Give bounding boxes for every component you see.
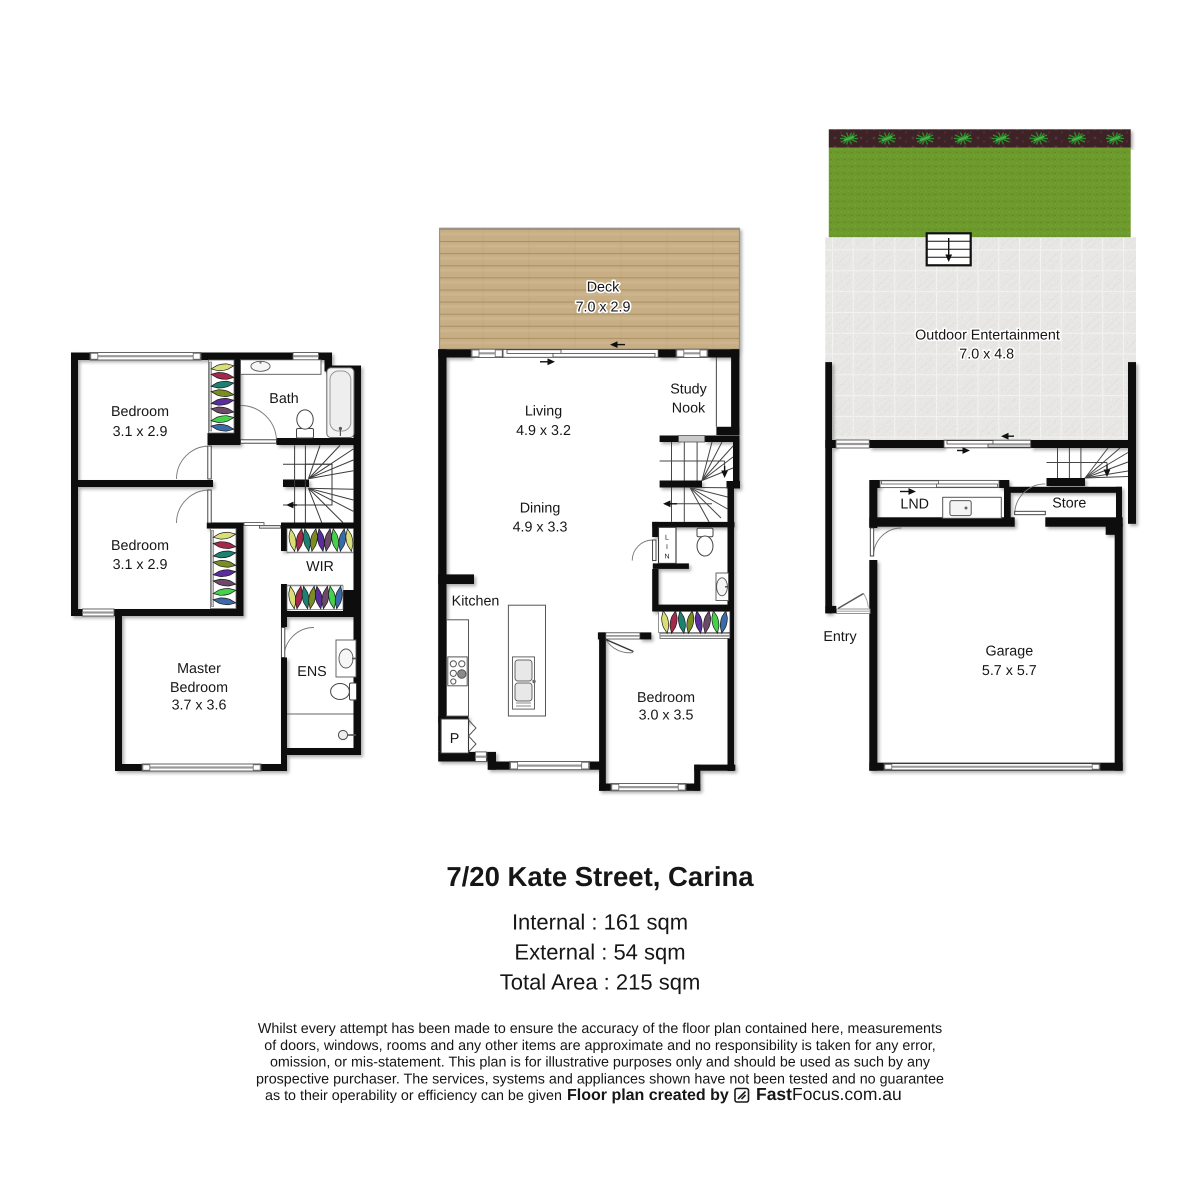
svg-text:of doors, windows, rooms and a: of doors, windows, rooms and any other i… — [264, 1038, 936, 1054]
svg-text:L: L — [665, 535, 669, 542]
svg-text:7.0 x 2.9: 7.0 x 2.9 — [576, 300, 631, 316]
svg-text:4.9 x 3.3: 4.9 x 3.3 — [513, 520, 568, 536]
svg-text:omission, or mis-statement. Th: omission, or mis-statement. This plan is… — [270, 1055, 931, 1071]
svg-text:Study: Study — [670, 382, 707, 398]
svg-text:7.0 x 4.8: 7.0 x 4.8 — [959, 347, 1014, 363]
svg-text:Entry: Entry — [823, 629, 857, 645]
svg-text:LND: LND — [900, 497, 929, 513]
svg-text:Fast: Fast — [756, 1084, 792, 1104]
svg-text:Nook: Nook — [672, 401, 706, 417]
svg-text:Total Area : 215 sqm: Total Area : 215 sqm — [500, 970, 701, 995]
svg-text:Whilst every attempt has been: Whilst every attempt has been made to en… — [258, 1021, 942, 1037]
svg-text:.com.au: .com.au — [840, 1084, 902, 1104]
svg-text:7/20 Kate Street, Carina: 7/20 Kate Street, Carina — [446, 861, 754, 892]
svg-text:5.7 x 5.7: 5.7 x 5.7 — [982, 663, 1037, 679]
svg-text:Outdoor Entertainment: Outdoor Entertainment — [915, 328, 1060, 344]
svg-text:Kitchen: Kitchen — [452, 594, 500, 610]
svg-text:Floor plan created by: Floor plan created by — [567, 1087, 729, 1104]
svg-text:as to their operability or eff: as to their operability or efficiency ca… — [265, 1088, 562, 1104]
svg-text:External : 54 sqm: External : 54 sqm — [514, 940, 685, 965]
svg-text:WIR: WIR — [306, 559, 334, 575]
svg-text:Bedroom: Bedroom — [111, 538, 169, 554]
svg-text:3.1 x 2.9: 3.1 x 2.9 — [113, 424, 168, 440]
svg-text:Bedroom: Bedroom — [170, 680, 228, 696]
svg-text:Bath: Bath — [269, 391, 298, 407]
svg-text:P: P — [450, 731, 460, 747]
svg-text:Store: Store — [1052, 496, 1086, 512]
svg-text:Living: Living — [525, 404, 562, 420]
svg-text:Master: Master — [177, 661, 221, 677]
svg-text:I: I — [666, 544, 668, 551]
svg-text:4.9 x 3.2: 4.9 x 3.2 — [516, 423, 571, 439]
svg-text:Internal : 161 sqm: Internal : 161 sqm — [512, 910, 688, 935]
svg-text:ENS: ENS — [297, 664, 326, 680]
svg-text:Bedroom: Bedroom — [111, 404, 169, 420]
svg-text:Dining: Dining — [520, 501, 561, 517]
svg-text:Deck: Deck — [587, 280, 620, 296]
svg-text:Focus: Focus — [792, 1084, 840, 1104]
svg-text:N: N — [664, 554, 669, 561]
svg-text:3.0 x 3.5: 3.0 x 3.5 — [639, 708, 694, 724]
svg-text:Garage: Garage — [985, 644, 1033, 660]
svg-text:3.1 x 2.9: 3.1 x 2.9 — [113, 557, 168, 573]
svg-text:Bedroom: Bedroom — [637, 690, 695, 706]
svg-text:3.7 x 3.6: 3.7 x 3.6 — [172, 698, 227, 714]
